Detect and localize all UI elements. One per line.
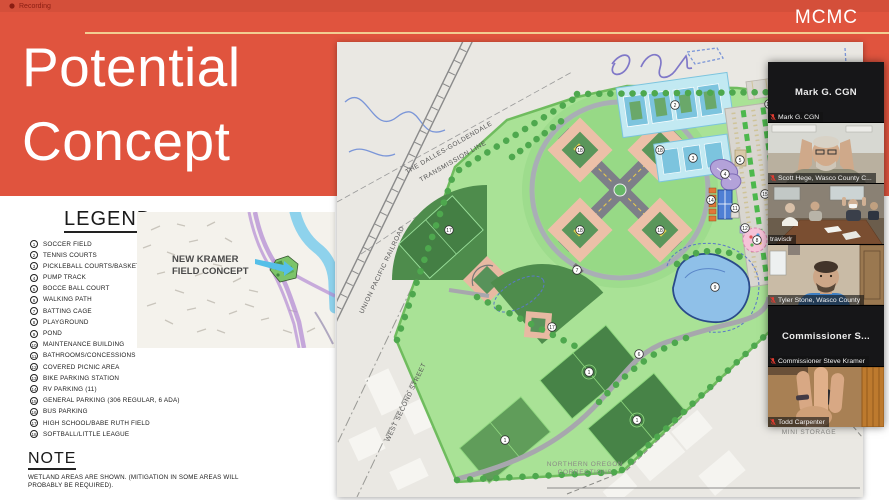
participant-label-text: Scott Hege, Wasco County C...	[778, 175, 872, 182]
legend-num: 11	[30, 352, 38, 360]
legend-num: 15	[30, 397, 38, 405]
legend-num: 5	[30, 285, 38, 293]
screen: Recording MCMC PotentialConcept LEGEND 1…	[0, 0, 889, 500]
locator-map-graphic: NEW KRAMER FIELD CONCEPT	[137, 212, 335, 348]
legend-num: 9	[30, 330, 38, 338]
participant-tile[interactable]: Scott Hege, Wasco County C...	[768, 123, 884, 183]
meeting-topbar	[0, 0, 889, 12]
participant-name-label: travisdr	[768, 235, 796, 244]
svg-text:9: 9	[714, 285, 717, 291]
legend-label: WALKING PATH	[43, 296, 92, 303]
legend-num: 1	[30, 240, 38, 248]
participant-tile[interactable]: Mark G. CGN Mark G. CGN	[768, 62, 884, 122]
recording-indicator[interactable]: Recording	[8, 2, 51, 10]
note-title: NOTE	[28, 450, 76, 470]
legend-num: 12	[30, 363, 38, 371]
title-line-2: Concept	[22, 110, 230, 172]
legend-label: PLAYGROUND	[43, 319, 89, 326]
locator-label-1: NEW KRAMER	[172, 254, 239, 265]
legend-num: 16	[30, 408, 38, 416]
svg-text:2: 2	[674, 103, 677, 109]
svg-text:5: 5	[739, 158, 742, 164]
legend-label: BUS PARKING	[43, 408, 88, 415]
legend-label: SOCCER FIELD	[43, 241, 92, 248]
legend-num: 2	[30, 251, 38, 259]
svg-text:1: 1	[588, 370, 591, 376]
legend-num: 4	[30, 274, 38, 282]
locator-map: NEW KRAMER FIELD CONCEPT	[137, 212, 335, 348]
svg-text:18: 18	[577, 148, 583, 154]
legend-label: BIKE PARKING STATION	[43, 375, 119, 382]
muted-mic-icon	[770, 296, 776, 304]
participant-tile[interactable]: travisdr	[768, 184, 884, 244]
legend-num: 13	[30, 374, 38, 382]
svg-text:17: 17	[446, 228, 452, 234]
note-text: WETLAND AREAS ARE SHOWN. (MITIGATION IN …	[28, 474, 243, 490]
legend-num: 7	[30, 307, 38, 315]
legend-num: 10	[30, 341, 38, 349]
legend-label: BATTING CAGE	[43, 308, 92, 315]
legend-num: 6	[30, 296, 38, 304]
legend-num: 14	[30, 385, 38, 393]
svg-text:11: 11	[732, 206, 737, 212]
legend-item: 12COVERED PICNIC AREA	[30, 363, 230, 371]
participant-label-text: Tyler Stone, Wasco County	[778, 297, 860, 304]
svg-text:3: 3	[692, 156, 695, 162]
legend-label: MAINTENANCE BUILDING	[43, 341, 124, 348]
legend-label: RV PARKING (11)	[43, 386, 97, 393]
svg-text:8: 8	[756, 238, 759, 244]
map-label-corrections-2: CORRECTIONS	[558, 469, 613, 476]
svg-text:7: 7	[576, 268, 579, 274]
legend-item: 13BIKE PARKING STATION	[30, 374, 230, 382]
muted-mic-icon	[770, 418, 776, 426]
map-label-corrections-1: NORTHERN OREGON	[547, 461, 623, 468]
legend-num: 17	[30, 419, 38, 427]
legend-item: 15GENERAL PARKING (306 REGULAR, 6 ADA)	[30, 397, 230, 405]
svg-text:18: 18	[577, 228, 583, 234]
participant-label-text: Mark G. CGN	[778, 114, 819, 121]
slide-title: PotentialConcept	[22, 30, 241, 178]
participant-name-label: Tyler Stone, Wasco County	[768, 295, 864, 305]
participant-tile[interactable]: Todd Carpenter	[768, 367, 884, 427]
svg-text:14: 14	[708, 198, 714, 204]
legend-num: 8	[30, 318, 38, 326]
legend-label: TENNIS COURTS	[43, 252, 97, 259]
participant-tile[interactable]: Tyler Stone, Wasco County	[768, 245, 884, 305]
legend-label: COVERED PICNIC AREA	[43, 364, 120, 371]
title-line-1: Potential	[22, 36, 241, 98]
participant-label-text: Todd Carpenter	[778, 419, 825, 426]
svg-text:12: 12	[742, 226, 748, 232]
legend-label: POND	[43, 330, 62, 337]
basketball-court	[718, 190, 732, 219]
legend-label: BOCCE BALL COURT	[43, 285, 110, 292]
legend-num: 3	[30, 262, 38, 270]
participant-name-label: Commissioner Steve Kramer	[768, 356, 869, 366]
muted-mic-icon	[770, 174, 776, 182]
participant-name-label: Scott Hege, Wasco County C...	[768, 173, 876, 183]
legend-item: 16BUS PARKING	[30, 408, 230, 416]
legend-label: PUMP TRACK	[43, 274, 86, 281]
muted-mic-icon	[770, 113, 776, 121]
map-label-storage-2: MINI STORAGE	[782, 429, 836, 436]
legend-label: BATHROOMS/CONCESSIONS	[43, 352, 136, 359]
svg-text:18: 18	[657, 148, 663, 154]
locator-label-2: FIELD CONCEPT	[172, 266, 249, 277]
participant-tile[interactable]: Commissioner S... Commissioner Steve Kra…	[768, 306, 884, 366]
svg-text:1: 1	[504, 438, 507, 444]
legend-label: SOFTBALL/LITTLE LEAGUE	[43, 431, 129, 438]
participant-label-text: travisdr	[770, 236, 792, 243]
recording-icon	[8, 2, 16, 10]
svg-text:18: 18	[657, 228, 663, 234]
note-panel: NOTE WETLAND AREAS ARE SHOWN. (MITIGATIO…	[28, 450, 243, 490]
participant-label-text: Commissioner Steve Kramer	[778, 358, 865, 365]
participant-name-label: Mark G. CGN	[768, 112, 823, 122]
legend-num: 18	[30, 430, 38, 438]
legend-item: 18SOFTBALL/LITTLE LEAGUE	[30, 430, 230, 438]
participant-strip: Mark G. CGN Mark G. CGN	[768, 62, 884, 427]
svg-text:17: 17	[549, 325, 555, 331]
legend-label: GENERAL PARKING (306 REGULAR, 6 ADA)	[43, 397, 180, 404]
svg-text:4: 4	[724, 172, 727, 178]
legend-item: 14RV PARKING (11)	[30, 385, 230, 393]
svg-text:1: 1	[636, 418, 639, 424]
svg-text:6: 6	[638, 352, 641, 358]
recording-label: Recording	[19, 3, 51, 10]
legend-item: 11BATHROOMS/CONCESSIONS	[30, 352, 230, 360]
legend-item: 17HIGH SCHOOL/BABE RUTH FIELD	[30, 419, 230, 427]
muted-mic-icon	[770, 357, 776, 365]
participant-name-label: Todd Carpenter	[768, 417, 829, 427]
legend-label: HIGH SCHOOL/BABE RUTH FIELD	[43, 420, 150, 427]
brand-logo: MCMC	[795, 7, 858, 29]
